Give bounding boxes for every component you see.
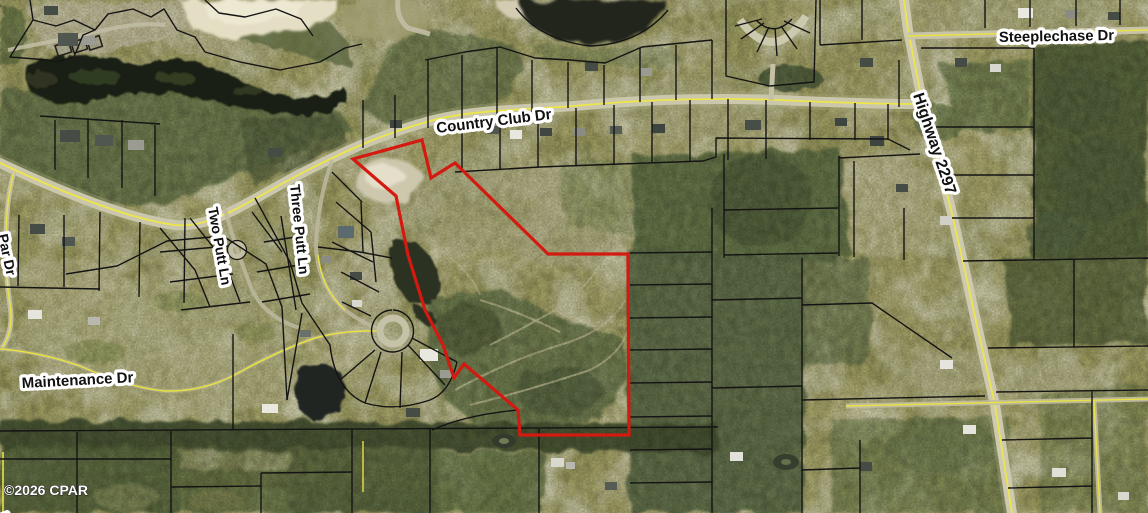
svg-text:©2026 CPAR: ©2026 CPAR (4, 482, 88, 498)
svg-text:Steeplechase Dr: Steeplechase Dr (999, 28, 1115, 46)
